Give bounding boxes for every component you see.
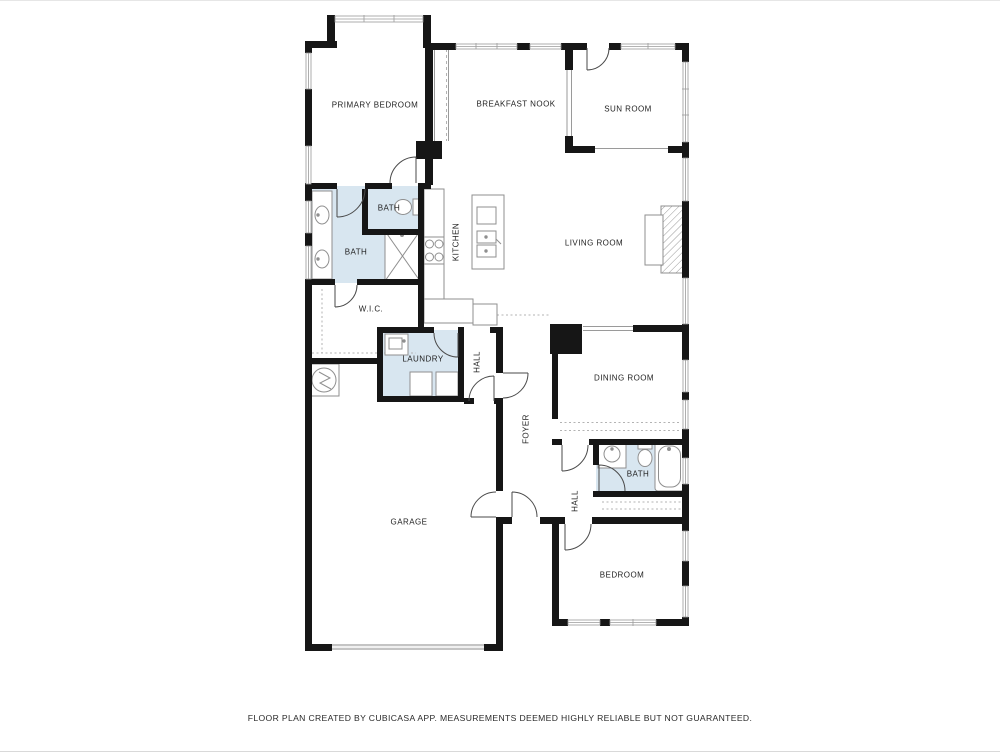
room-label-garage: GARAGE	[391, 518, 428, 527]
room-label-sun-room: SUN ROOM	[604, 105, 652, 114]
floor-plan-page: PRIMARY BEDROOM BREAKFAST NOOK SUN ROOM …	[0, 0, 1000, 752]
room-label-breakfast-nook: BREAKFAST NOOK	[476, 100, 555, 109]
garage-door	[332, 644, 484, 650]
kitchen-counter-lower	[424, 299, 473, 323]
room-label-dining-room: DINING ROOM	[594, 374, 654, 383]
door-primary-bedroom	[390, 157, 416, 183]
room-label-living-room: LIVING ROOM	[565, 239, 623, 248]
fireplace-hearth	[645, 215, 663, 265]
sink-faucet	[317, 214, 319, 216]
toilet-bowl	[638, 450, 652, 467]
doors	[335, 48, 625, 550]
water-heater	[312, 368, 336, 392]
room-label-foyer: FOYER	[522, 414, 531, 444]
burner	[426, 240, 434, 248]
door-bedroom	[565, 524, 591, 550]
door-wic	[335, 285, 357, 307]
kitchen-cabinet	[473, 304, 497, 325]
door-hall-upper	[469, 376, 494, 401]
room-label-bath-primary: BATH	[345, 248, 368, 257]
room-label-bath-toilet: BATH	[378, 204, 401, 213]
island-cabinet	[477, 207, 496, 224]
sink-faucet	[317, 258, 319, 260]
door-hall-lower	[562, 445, 588, 471]
door-sun-room	[587, 48, 609, 70]
room-label-bedroom: BEDROOM	[600, 571, 645, 580]
room-label-bath-lower: BATH	[627, 470, 650, 479]
room-label-wic: W.I.C.	[359, 305, 383, 314]
fireplace-hatch	[661, 206, 684, 273]
door-foyer-side	[503, 373, 528, 398]
footer-disclaimer: FLOOR PLAN CREATED BY CUBICASA APP. MEAS…	[0, 713, 1000, 723]
room-label-hall-lower: HALL	[571, 490, 580, 512]
burner	[435, 240, 443, 248]
floor-plan-drawing	[0, 1, 1000, 751]
tub-faucet	[668, 448, 671, 451]
room-label-hall-upper: HALL	[473, 351, 482, 373]
room-label-primary-bedroom: PRIMARY BEDROOM	[332, 101, 418, 110]
washer	[410, 372, 432, 396]
door-garage-entry	[471, 492, 496, 517]
burner	[435, 253, 443, 261]
room-label-kitchen: KITCHEN	[452, 223, 461, 261]
burner	[426, 253, 434, 261]
dryer	[436, 372, 458, 396]
room-label-laundry: LAUNDRY	[402, 355, 443, 364]
door-front-entry	[512, 492, 537, 517]
cased-openings	[435, 48, 669, 331]
